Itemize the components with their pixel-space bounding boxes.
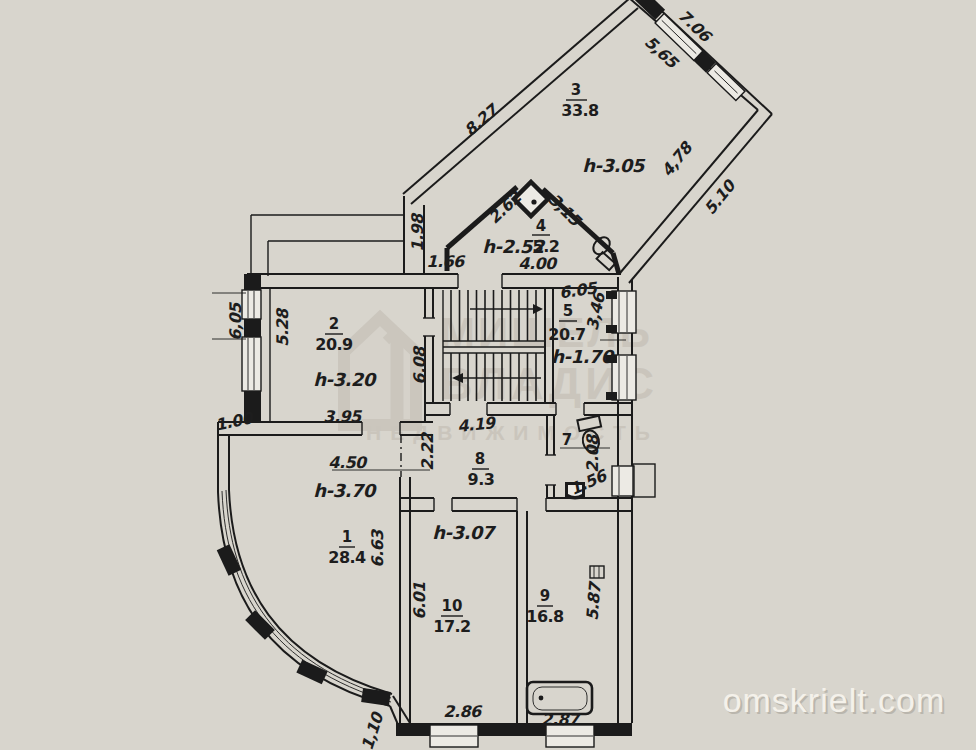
agency-watermark-line3: НЕДВИЖИМОСТЬ bbox=[366, 421, 659, 444]
room8-number: 8 bbox=[475, 450, 485, 468]
room1-number: 1 bbox=[342, 528, 352, 546]
room1-height: h-3.70 bbox=[313, 480, 378, 501]
site-watermark: omskrielt.com omskrielt.com bbox=[723, 681, 948, 721]
room3-number: 3 bbox=[571, 81, 581, 99]
room5-area: 20.7 bbox=[548, 325, 585, 344]
room10-number: 10 bbox=[442, 597, 463, 615]
dim-room9-right: 5.87 bbox=[582, 580, 604, 621]
dim-room1-top: 4.50 bbox=[328, 453, 368, 472]
room3-height: h-3.05 bbox=[582, 155, 646, 176]
dim-room1-right: 6.63 bbox=[368, 528, 387, 568]
room9-area: 16.8 bbox=[526, 607, 564, 626]
site-watermark-text: omskrielt.com bbox=[723, 681, 946, 719]
dim-room2-left: 5.28 bbox=[273, 307, 292, 347]
dim-stairs-left: 6.08 bbox=[410, 345, 429, 385]
dim-room2-bottom: 3.95 bbox=[323, 407, 363, 426]
room10-area: 17.2 bbox=[433, 617, 470, 636]
dim-room4-bottom: 4.00 bbox=[518, 254, 558, 273]
room1-area: 28.4 bbox=[328, 548, 366, 567]
dim-room10-bottom: 2.86 bbox=[443, 702, 483, 721]
room2-area: 20.9 bbox=[315, 335, 353, 354]
room4-number: 4 bbox=[536, 217, 546, 235]
room10-height: h-3.07 bbox=[432, 522, 497, 543]
dim-room10-left: 6.01 bbox=[410, 582, 429, 620]
dim-room9-bottom: 2.87 bbox=[541, 710, 581, 729]
dim-room2-outer-left: 6,05 bbox=[226, 301, 245, 341]
room5-number: 5 bbox=[563, 302, 573, 320]
dim-room4-side: 1.66 bbox=[426, 252, 466, 271]
room3-area: 33.8 bbox=[561, 101, 599, 120]
dim-room8-left: 2.22 bbox=[418, 431, 437, 471]
floorplan-scan: МИШЕЛЬ ВЛАДИС НЕДВИЖИМОСТЬ bbox=[0, 0, 976, 750]
room9-number: 9 bbox=[540, 587, 550, 605]
room2-height: h-3.20 bbox=[313, 369, 378, 390]
room5-height: h-1.70 bbox=[551, 346, 616, 367]
room7-number: 7 bbox=[562, 431, 572, 449]
floorplan-svg: МИШЕЛЬ ВЛАДИС НЕДВИЖИМОСТЬ bbox=[0, 0, 976, 750]
room8-area: 9.3 bbox=[468, 470, 495, 489]
room2-number: 2 bbox=[329, 315, 339, 333]
dim-hall-left: 1.98 bbox=[408, 212, 427, 252]
